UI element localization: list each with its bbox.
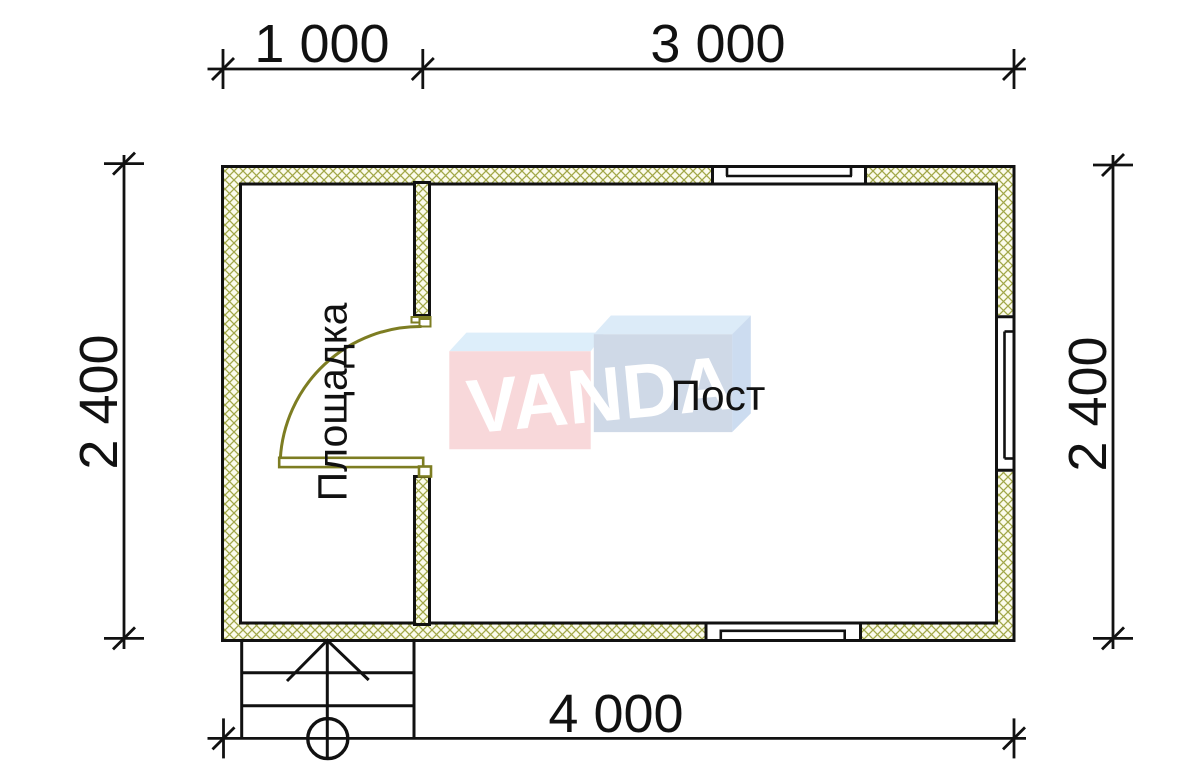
- svg-text:Площадка: Площадка: [310, 302, 356, 501]
- svg-text:1 000: 1 000: [254, 14, 389, 74]
- svg-text:Пост: Пост: [671, 373, 766, 420]
- svg-text:3 000: 3 000: [650, 14, 785, 74]
- svg-text:2 400: 2 400: [69, 334, 129, 469]
- svg-text:2 400: 2 400: [1058, 336, 1118, 471]
- svg-text:4 000: 4 000: [548, 684, 683, 744]
